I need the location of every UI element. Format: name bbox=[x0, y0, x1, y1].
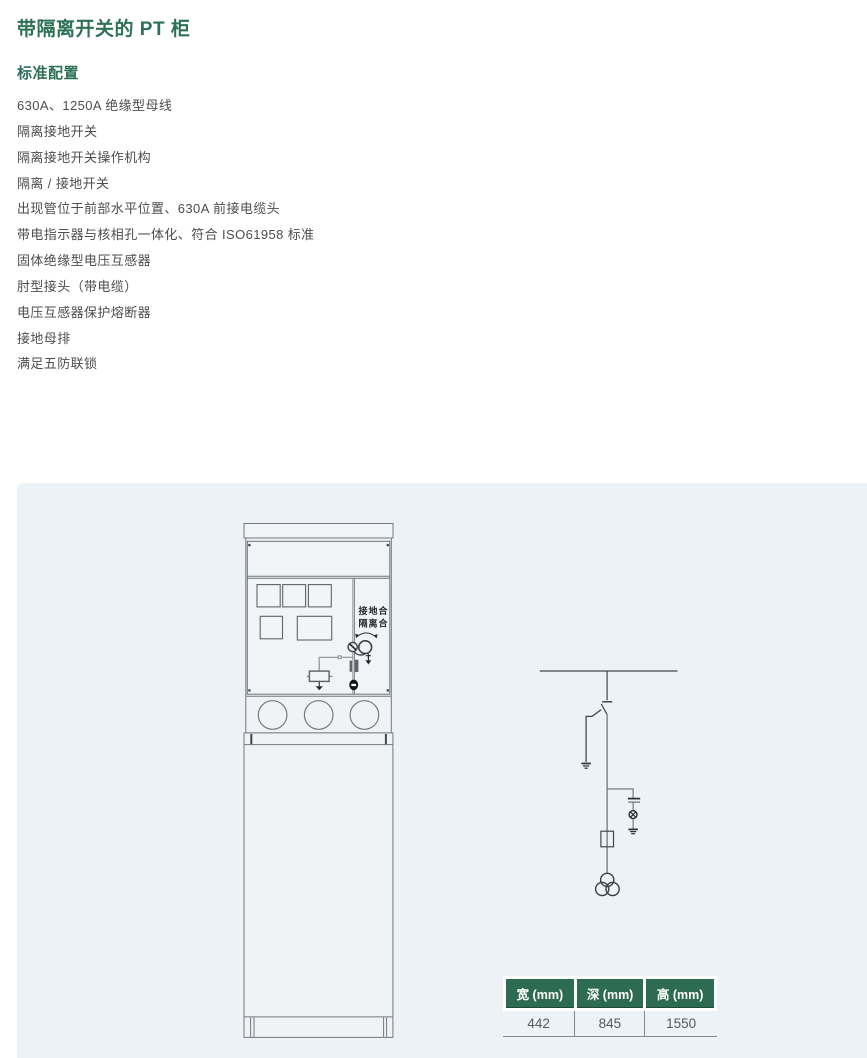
svg-text:接地合: 接地合 bbox=[359, 605, 389, 616]
svg-text:隔离合: 隔离合 bbox=[359, 618, 389, 629]
